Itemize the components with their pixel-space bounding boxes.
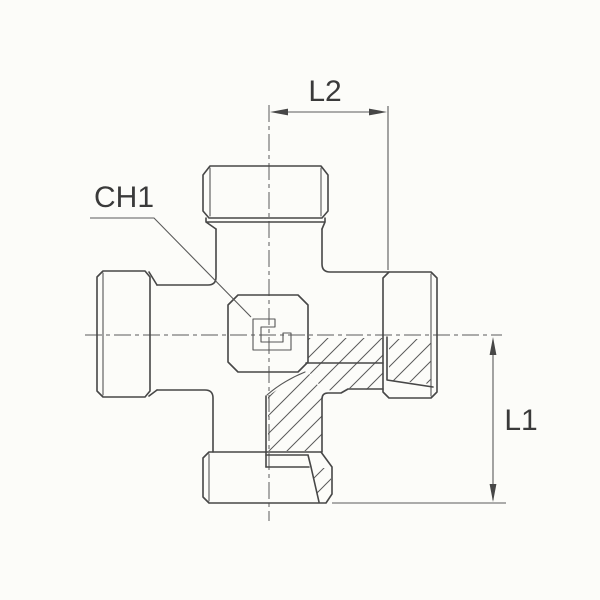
left-port-neck (157, 390, 213, 452)
callout-label-ch1: CH1 (94, 181, 154, 214)
bottom-port-counterbore (266, 452, 321, 502)
top-port-nut (203, 166, 328, 218)
technical-drawing-page: L2 L1 CH1 (0, 0, 600, 600)
l2-arrow-left (270, 109, 288, 116)
l1-arrow-bottom (490, 484, 497, 502)
centerlines (85, 105, 502, 521)
body-lower-right-outline (322, 389, 383, 452)
top-port-collar (206, 218, 325, 229)
dimension-l2: L2 (270, 75, 388, 270)
hatch-right-nut (389, 339, 431, 384)
l1-arrow-top (490, 337, 497, 355)
cross-fitting-diagram: L2 L1 CH1 (0, 0, 600, 600)
left-port-nut (97, 271, 150, 397)
dimension-label-l1: L1 (504, 404, 537, 437)
top-port-nut-chamfer-lines (210, 168, 321, 216)
hatch-right-port-wall (308, 338, 383, 392)
ch1-leader-line (90, 218, 251, 317)
hatch-bottom-neck-wall (268, 372, 322, 451)
dimension-label-l2: L2 (308, 75, 341, 108)
callout-ch1: CH1 (90, 181, 251, 317)
l2-arrow-right (369, 109, 387, 116)
